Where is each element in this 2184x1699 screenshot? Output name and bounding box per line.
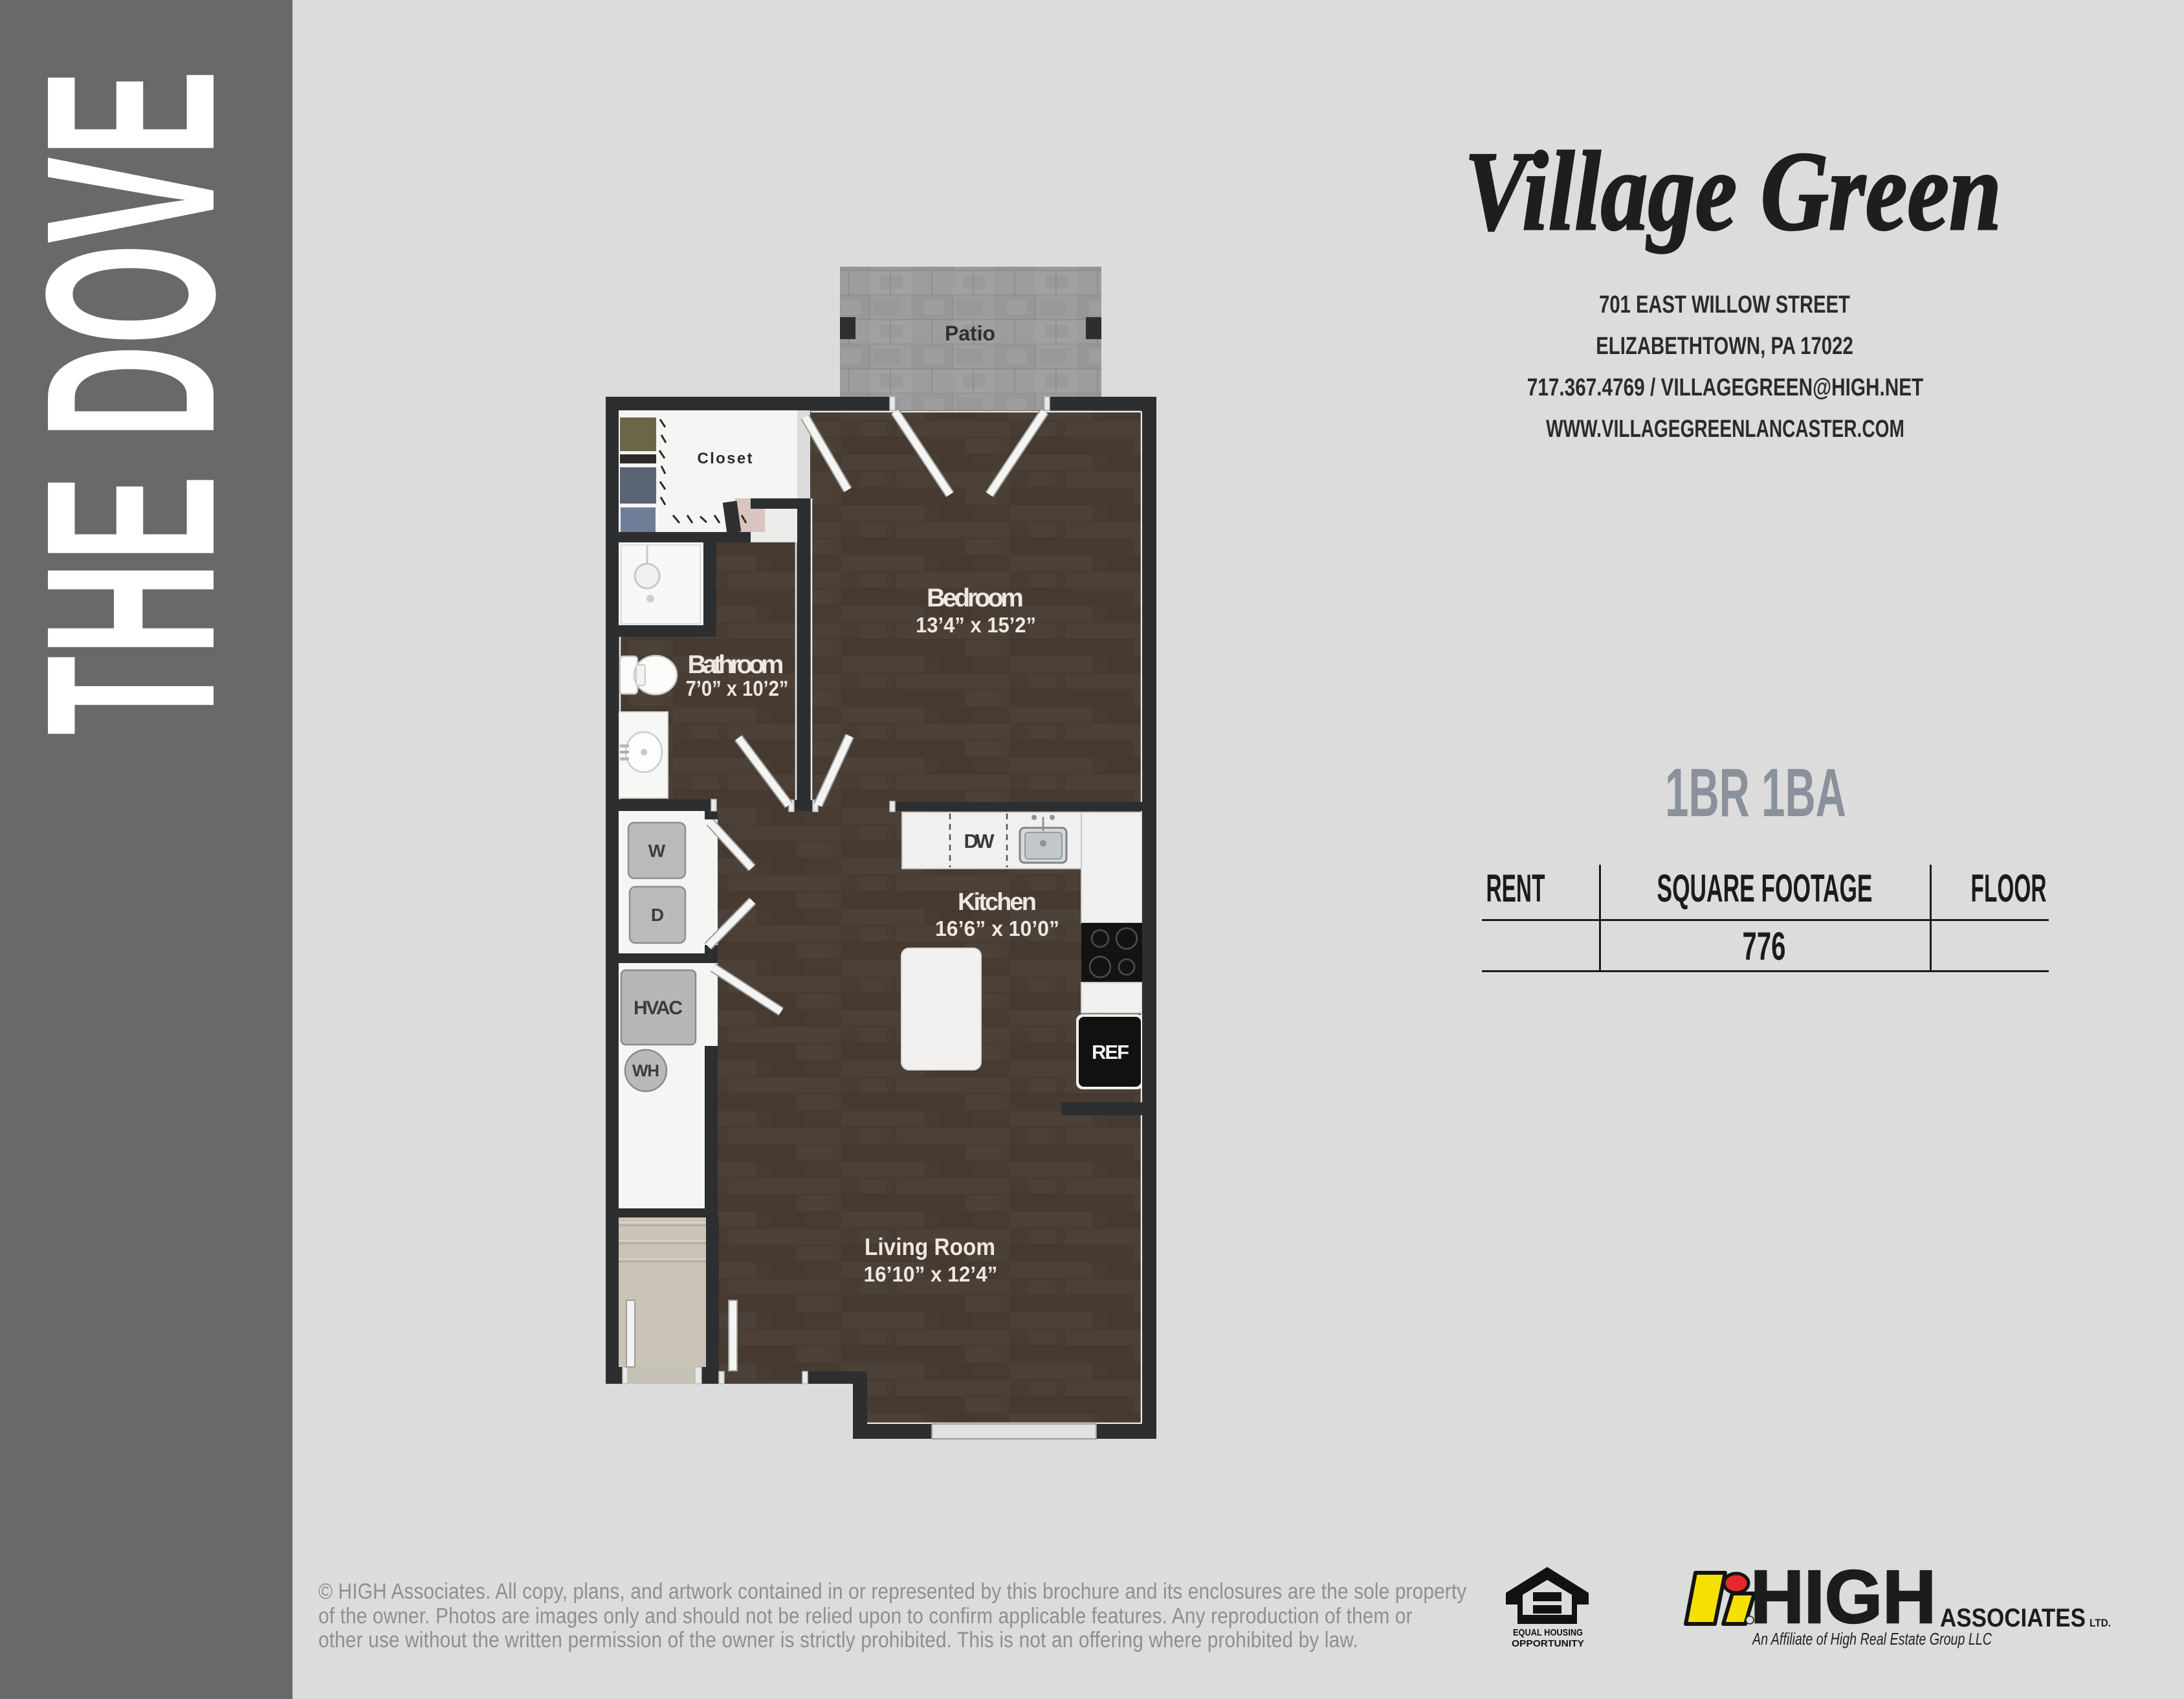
svg-text:ASSOCIATES: ASSOCIATES	[1940, 1604, 2086, 1632]
svg-text:701 EAST WILLOW STREET: 701 EAST WILLOW STREET	[1599, 291, 1850, 318]
svg-text:HIGH: HIGH	[1750, 1555, 1936, 1639]
svg-text:16’6” x 10’0”: 16’6” x 10’0”	[935, 917, 1059, 941]
svg-text:W: W	[648, 841, 666, 861]
svg-text:1BR 1BA: 1BR 1BA	[1665, 754, 1846, 831]
svg-text:16’10” x 12’4”: 16’10” x 12’4”	[864, 1262, 998, 1286]
svg-text:Bathroom: Bathroom	[688, 650, 784, 679]
svg-text:776: 776	[1743, 924, 1786, 968]
svg-text:7’0” x 10’2”: 7’0” x 10’2”	[686, 676, 789, 700]
svg-text:SQUARE FOOTAGE: SQUARE FOOTAGE	[1657, 867, 1873, 910]
svg-text:LTD.: LTD.	[2090, 1617, 2111, 1629]
svg-text:OPPORTUNITY: OPPORTUNITY	[1512, 1638, 1584, 1649]
svg-text:Closet: Closet	[698, 450, 753, 467]
svg-text:717.367.4769 / VILLAGEGREEN@HI: 717.367.4769 / VILLAGEGREEN@HIGH.NET	[1527, 374, 1924, 401]
svg-text:ELIZABETHTOWN, PA 17022: ELIZABETHTOWN, PA 17022	[1596, 332, 1853, 360]
svg-text:D: D	[651, 905, 664, 925]
svg-text:WWW.VILLAGEGREENLANCASTER.COM: WWW.VILLAGEGREENLANCASTER.COM	[1546, 416, 1904, 443]
svg-text:FLOOR: FLOOR	[1971, 867, 2047, 911]
svg-text:HVAC: HVAC	[634, 997, 683, 1019]
svg-text:REF: REF	[1092, 1041, 1129, 1063]
svg-text:RENT: RENT	[1486, 867, 1545, 911]
svg-text:DW: DW	[964, 830, 995, 852]
svg-text:THE DOVE: THE DOVE	[0, 70, 265, 735]
svg-text:Living Room: Living Room	[865, 1234, 995, 1260]
svg-text:An Affiliate of High Real Esta: An Affiliate of High Real Estate Group L…	[1751, 1629, 1992, 1648]
svg-text:13’4” x 15’2”: 13’4” x 15’2”	[916, 613, 1036, 637]
svg-text:EQUAL HOUSING: EQUAL HOUSING	[1513, 1627, 1583, 1638]
svg-text:Village Green: Village Green	[1464, 128, 2002, 254]
svg-text:WH: WH	[632, 1061, 659, 1080]
svg-text:Patio: Patio	[945, 322, 995, 345]
svg-text:Bedroom: Bedroom	[927, 584, 1024, 612]
svg-text:Kitchen: Kitchen	[958, 889, 1037, 916]
